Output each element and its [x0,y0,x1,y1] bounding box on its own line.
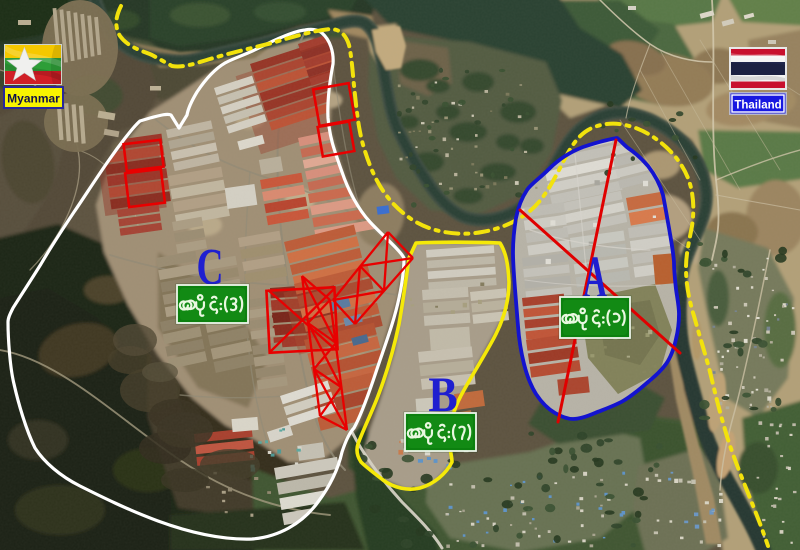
svg-text:Myanmar: Myanmar [7,92,60,106]
svg-text:Thailand: Thailand [734,100,781,112]
